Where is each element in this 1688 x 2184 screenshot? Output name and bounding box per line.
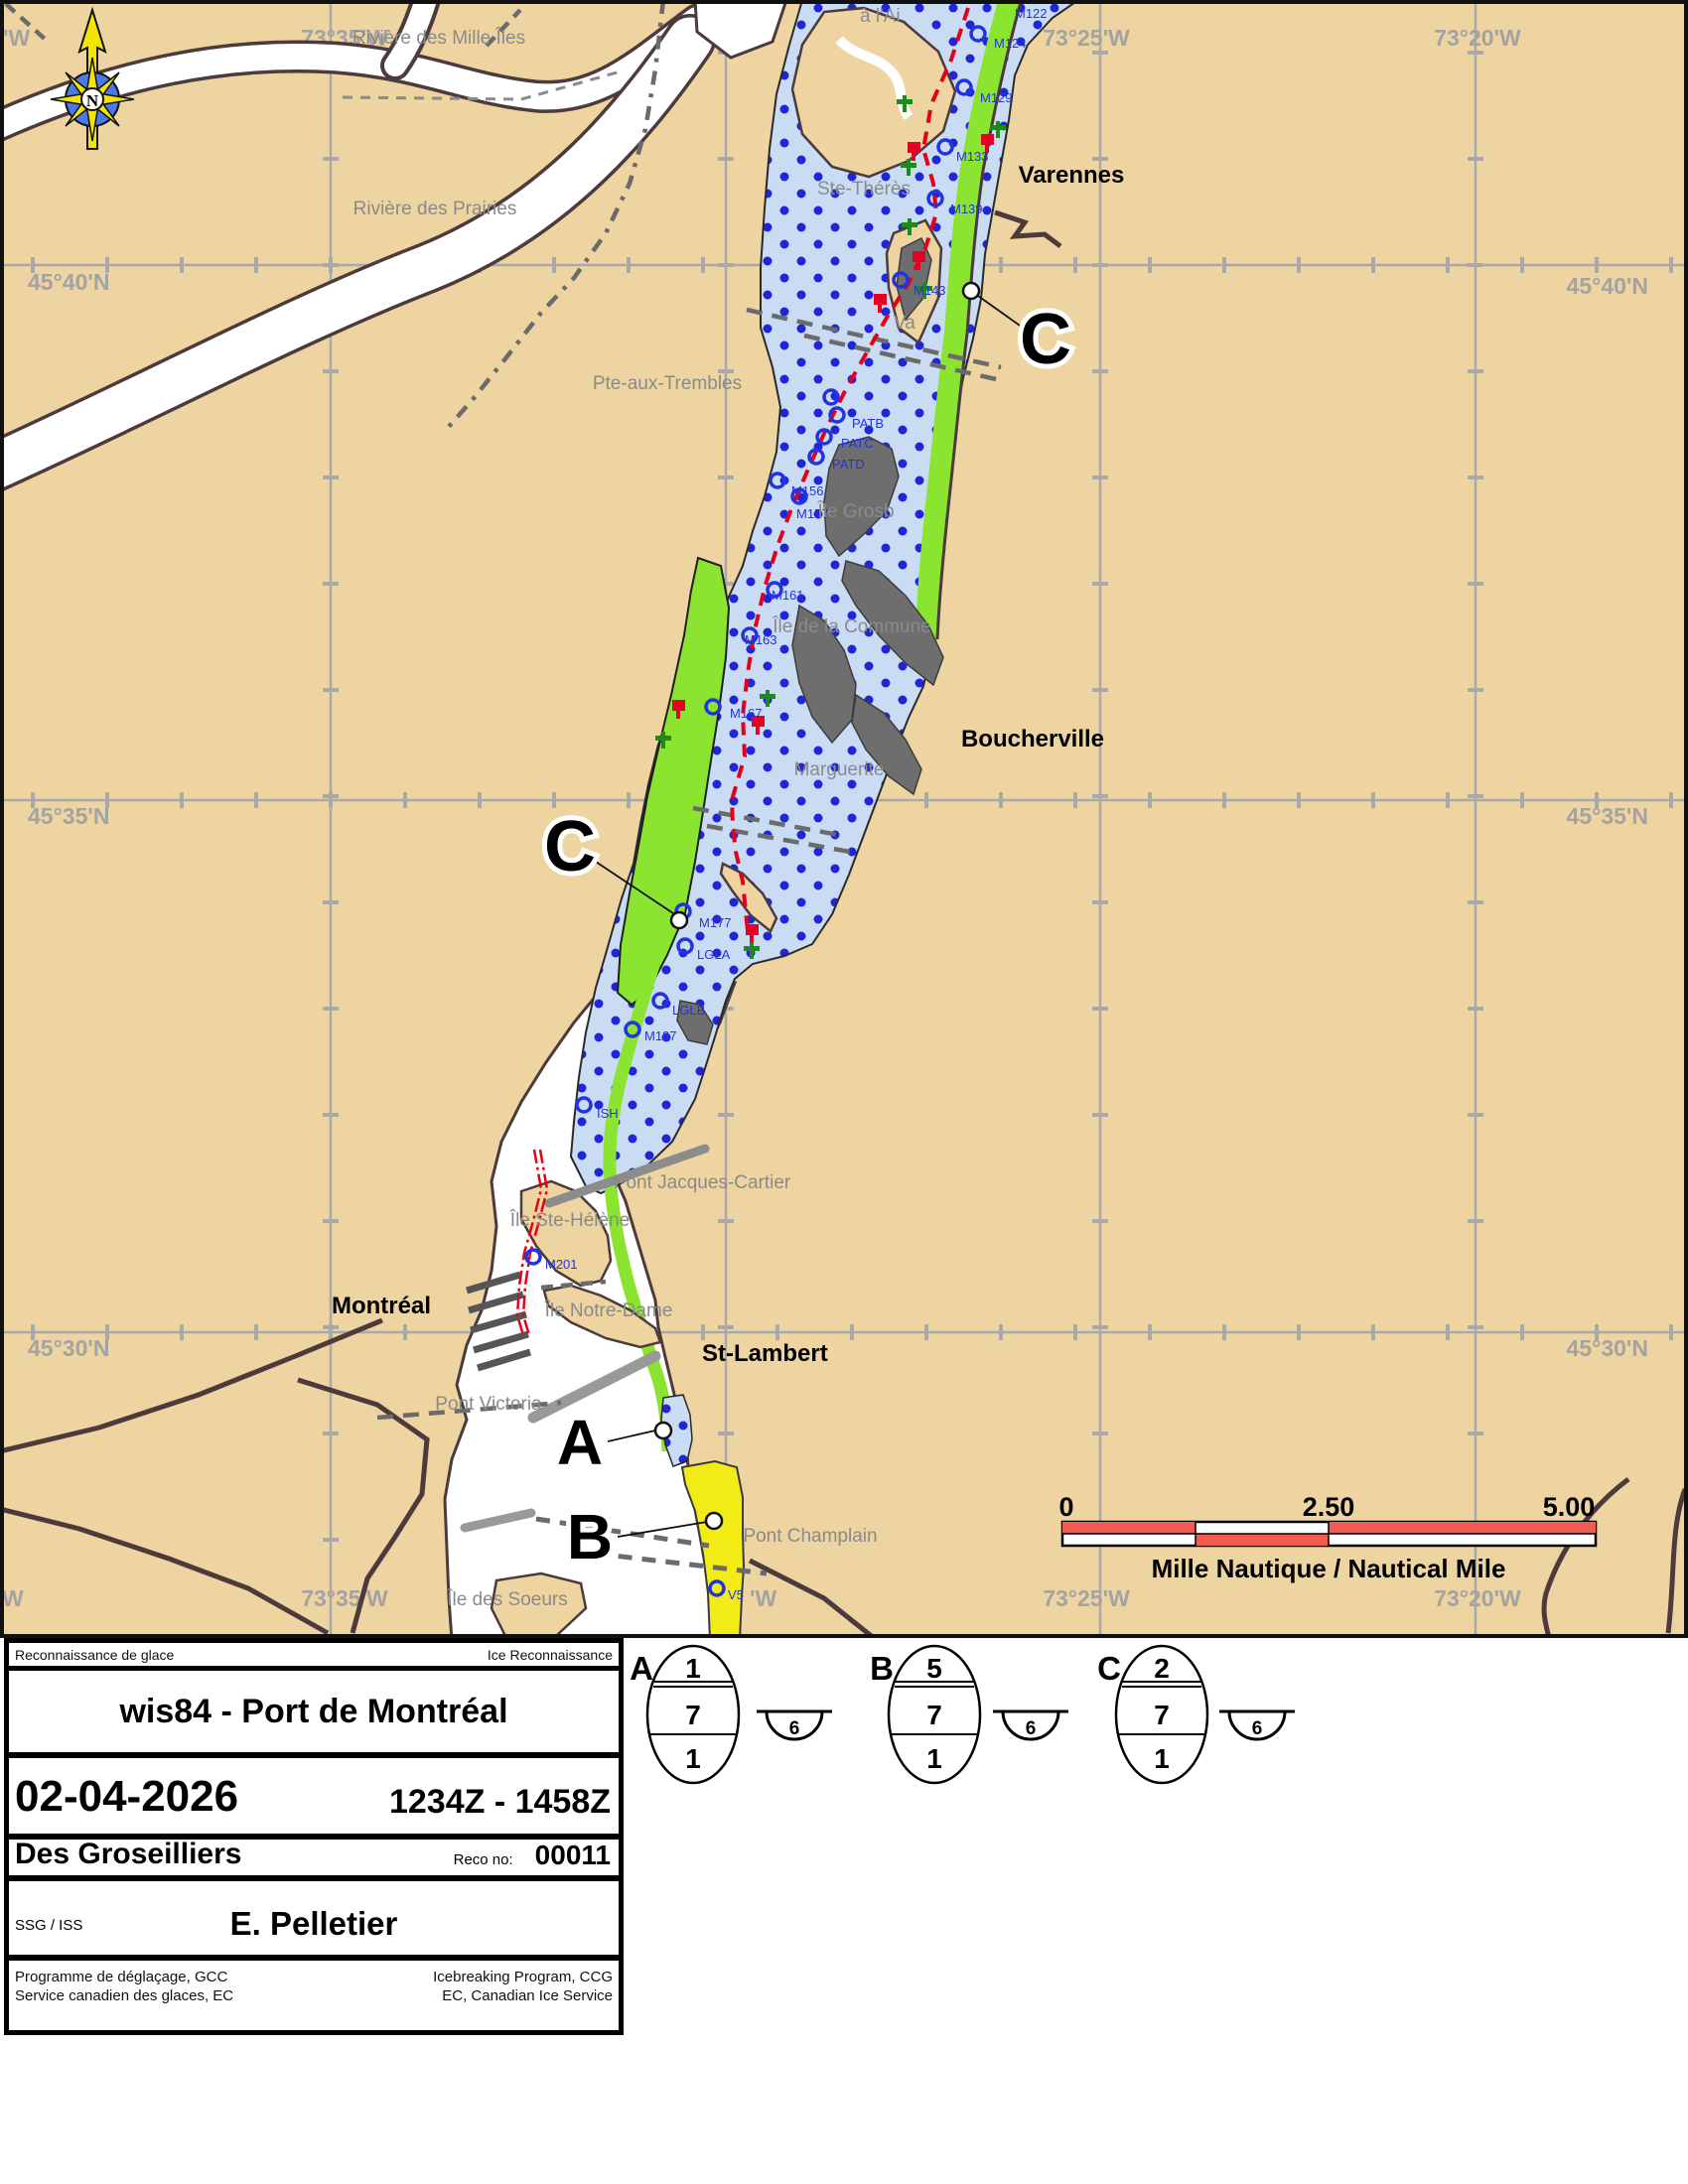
egg-code-c: C 2 7 1 6	[1097, 1646, 1295, 1783]
place-label: Pont Victoria	[435, 1394, 542, 1415]
grid-label: 45°40'N	[28, 269, 109, 295]
ice-reconnaissance-chart: 'W 73°35'W 73°30'W 73°25'W 73°20'W W 73°…	[0, 0, 1688, 2184]
region-letter-a: A	[557, 1407, 603, 1478]
footer-service-fr: Service canadien des glaces, EC	[15, 1987, 233, 2004]
place-label: Pte-aux-Trembles	[593, 373, 742, 394]
ship-name: Des Groseilliers	[15, 1838, 241, 1871]
buoy-label: LGLA	[697, 947, 731, 962]
buoy-label: M139	[950, 202, 983, 216]
egg-region-label: A	[630, 1650, 653, 1687]
callout-point-b	[706, 1513, 722, 1529]
place-label: Île Ste-Hélène	[509, 1209, 630, 1231]
buoy-label: M156	[791, 483, 824, 498]
footer-program-fr: Programme de déglaçage, GCC	[15, 1969, 227, 1985]
egg-code-a: A 1 7 1 6	[630, 1646, 832, 1783]
buoy-label: PATB	[852, 416, 884, 431]
grid-label: 45°35'N	[1567, 803, 1648, 829]
egg-code-b: B 5 7 1 6	[870, 1646, 1068, 1783]
observer-name: E. Pelletier	[9, 1905, 619, 1943]
grid-label: 73°25'W	[1043, 1585, 1130, 1611]
egg-stage: 7	[685, 1700, 701, 1730]
egg-concentration: 2	[1154, 1653, 1170, 1684]
observation-time-range: 1234Z - 1458Z	[389, 1783, 611, 1822]
callout-point-c-mid	[671, 912, 687, 928]
grid-label: 'W	[3, 25, 30, 51]
panel-ship-row: Des Groseilliers Reco no: 00011	[9, 1840, 619, 1881]
chart-title: wis84 - Port de Montréal	[119, 1693, 507, 1731]
place-label: Va	[894, 313, 915, 334]
map-area: 'W 73°35'W 73°30'W 73°25'W 73°20'W W 73°…	[0, 0, 1688, 1638]
panel-observer-row: SSG / ISS E. Pelletier	[9, 1881, 619, 1961]
egg-region-label: C	[1097, 1650, 1121, 1687]
egg-stage: 7	[1154, 1700, 1170, 1730]
place-label: Pont Jacques-Cartier	[614, 1172, 791, 1193]
info-panel: Reconnaissance de glace Ice Reconnaissan…	[4, 1638, 624, 2035]
buoy-label: M122	[1015, 6, 1048, 21]
buoy-label: V5	[728, 1587, 744, 1602]
grid-label: 73°20'W	[1434, 1585, 1521, 1611]
egg-form: 1	[685, 1743, 701, 1774]
buoy-label: M133	[956, 149, 989, 164]
map-svg: 'W 73°35'W 73°30'W 73°25'W 73°20'W W 73°…	[0, 0, 1688, 1638]
scale-caption: Mille Nautique / Nautical Mile	[1152, 1554, 1506, 1583]
panel-header-left: Reconnaissance de glace	[15, 1647, 174, 1663]
footer-service-en: EC, Canadian Ice Service	[442, 1987, 613, 2004]
city-label-montreal: Montréal	[332, 1293, 431, 1319]
buoy-label: M129	[980, 90, 1013, 105]
egg-stage: 7	[926, 1700, 942, 1730]
buoy-label: M143	[914, 283, 946, 298]
place-label: Ste-Thérès	[817, 179, 911, 200]
grid-label: 73°35'W	[301, 1585, 388, 1611]
region-letter-c-north: C	[1020, 300, 1071, 379]
grid-label: 'W	[750, 1585, 776, 1611]
compass-north-letter: N	[86, 91, 99, 110]
observation-date: 02-04-2026	[15, 1772, 238, 1822]
buoy-label: M187	[644, 1028, 677, 1043]
panel-date-row: 02-04-2026 1234Z - 1458Z	[9, 1758, 619, 1840]
egg-region-label: B	[870, 1650, 894, 1687]
region-letter-b: B	[567, 1501, 613, 1572]
footer-program-en: Icebreaking Program, CCG	[433, 1969, 613, 1985]
reco-number-label: Reco no:	[454, 1851, 513, 1871]
scale-middle: 2.50	[1303, 1492, 1355, 1522]
place-label: Rivière des Prairies	[353, 199, 517, 219]
panel-header-row: Reconnaissance de glace Ice Reconnaissan…	[9, 1643, 619, 1671]
scale-end: 5.00	[1543, 1492, 1596, 1522]
buoy-label: M201	[545, 1257, 578, 1272]
grid-label: 45°30'N	[28, 1335, 109, 1361]
egg-fast-ice: 6	[1026, 1718, 1037, 1739]
buoy-label: PATD	[832, 457, 865, 472]
buoy-label: M167	[730, 706, 763, 721]
grid-label: W	[2, 1585, 24, 1611]
place-label: Île des Soeurs	[446, 1588, 567, 1610]
grid-label: 45°40'N	[1567, 273, 1648, 299]
place-label: à l'Ai	[860, 6, 901, 27]
panel-title-row: wis84 - Port de Montréal	[9, 1671, 619, 1758]
place-label: Marguerite	[794, 759, 885, 780]
place-label: Rivière des Mille Îles	[352, 27, 525, 49]
egg-fast-ice: 6	[1252, 1718, 1263, 1739]
buoy-label: LGLB	[672, 1003, 705, 1018]
grid-label: 73°20'W	[1434, 25, 1521, 51]
grid-label: 45°35'N	[28, 803, 109, 829]
city-label-st-lambert: St-Lambert	[702, 1340, 828, 1367]
buoy-label: PATC	[841, 436, 874, 451]
buoy-label: M124	[994, 36, 1027, 51]
panel-footer-row: Programme de déglaçage, GCC Icebreaking …	[9, 1961, 619, 2012]
egg-concentration: 1	[685, 1653, 701, 1684]
grid-label: 73°25'W	[1043, 25, 1130, 51]
buoy-label: ISH	[597, 1106, 619, 1121]
place-label: Île de la Commune	[772, 615, 930, 637]
panel-header-right: Ice Reconnaissance	[488, 1647, 613, 1663]
place-label: Pont Champlain	[743, 1526, 877, 1547]
grid-label: 45°30'N	[1567, 1335, 1648, 1361]
egg-form: 1	[1154, 1743, 1170, 1774]
egg-concentration: 5	[926, 1653, 942, 1684]
buoy-label: M161	[772, 588, 804, 603]
city-label-boucherville: Boucherville	[961, 726, 1104, 752]
city-label-varennes: Varennes	[1019, 162, 1125, 189]
reco-number-value: 00011	[535, 1840, 611, 1871]
buoy-label: M177	[699, 915, 732, 930]
egg-fast-ice: 6	[789, 1718, 800, 1739]
region-letter-c-mid: C	[544, 807, 596, 887]
place-label: Île Notre-Dame	[544, 1299, 673, 1321]
callout-point-a	[655, 1423, 671, 1438]
callout-point-c-north	[963, 283, 979, 299]
scale-start: 0	[1058, 1492, 1073, 1522]
place-label: Île Grosb	[816, 500, 894, 522]
egg-form: 1	[926, 1743, 942, 1774]
